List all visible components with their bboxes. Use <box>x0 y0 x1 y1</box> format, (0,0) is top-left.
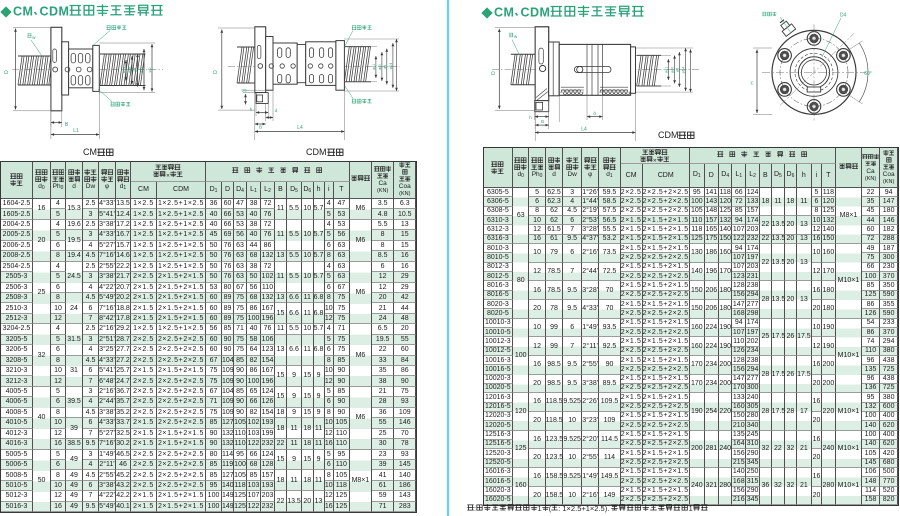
svg-text:D5: D5 <box>241 88 247 93</box>
svg-text:φd1: φd1 <box>122 67 126 73</box>
svg-text:D: D <box>4 70 10 74</box>
svg-text:B: B <box>541 119 544 124</box>
svg-text:B: B <box>259 125 262 130</box>
svg-text:h: h <box>250 107 253 112</box>
svg-text:CM: CM <box>83 147 97 157</box>
svg-text:h: h <box>529 115 532 120</box>
svg-text:L4: L4 <box>297 125 303 131</box>
svg-text:φD4: φD4 <box>389 63 393 70</box>
svg-text:D: D <box>213 70 219 74</box>
svg-text:w: w <box>32 35 36 40</box>
svg-text:H: H <box>750 81 755 84</box>
svg-text:φd0: φd0 <box>128 67 132 73</box>
svg-text:CDM: CDM <box>658 130 679 140</box>
svg-text:φd: φd <box>675 68 679 72</box>
svg-text:φd1: φd1 <box>372 64 376 70</box>
svg-text:D: D <box>491 71 497 75</box>
svg-text:φd0: φd0 <box>671 67 675 73</box>
svg-text:φD4: φD4 <box>682 67 686 74</box>
svg-text:L1: L1 <box>73 128 79 134</box>
svg-text:φd4: φd4 <box>140 67 144 73</box>
svg-text:φd0: φd0 <box>378 64 382 70</box>
svg-text:d: d <box>275 108 278 113</box>
svg-text:B: B <box>65 122 69 128</box>
svg-text:Δ: Δ <box>593 111 596 116</box>
svg-text:60°: 60° <box>864 71 872 77</box>
svg-text:φD: φD <box>148 67 152 72</box>
svg-text:φd: φd <box>383 65 387 69</box>
svg-text:φd: φd <box>134 68 138 72</box>
svg-text:D4: D4 <box>840 13 847 19</box>
svg-text:CDM: CDM <box>306 147 327 157</box>
svg-text:L4: L4 <box>581 127 587 133</box>
svg-text:w: w <box>514 34 518 39</box>
svg-text:φd1: φd1 <box>664 67 668 73</box>
